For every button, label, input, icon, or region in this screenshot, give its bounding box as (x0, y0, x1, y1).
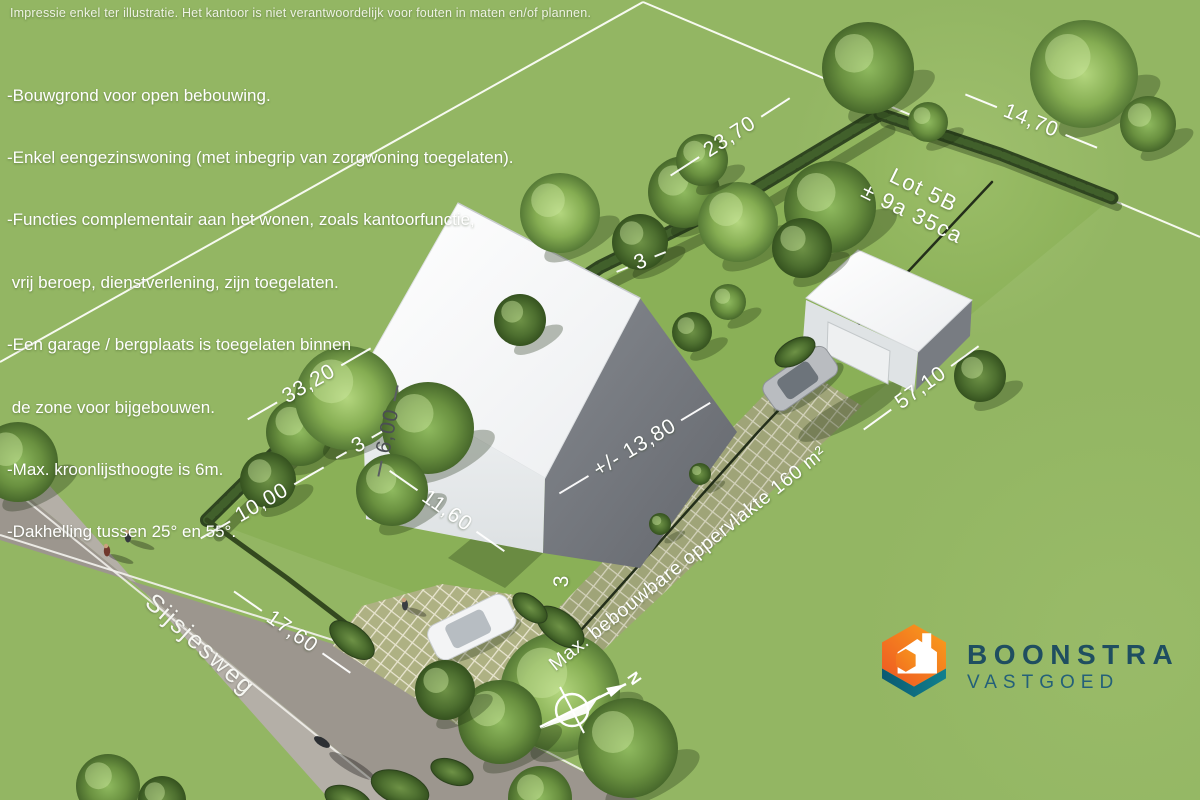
boonstra-vastgoed-logo: BOONSTRA VASTGOED (873, 621, 1179, 703)
disclaimer-text: Impressie enkel ter illustratie. Het kan… (10, 6, 591, 20)
dimension-setback-strip: 3 (550, 574, 574, 588)
site-plan-illustration: N Impressie enkel ter illustratie. Het k… (0, 0, 1200, 800)
regulations-list: -Bouwgrond voor open bebouwing. -Enkel e… (7, 44, 514, 585)
regulation-line: -Functies complementair aan het wonen, z… (7, 210, 514, 231)
regulation-line: vrij beroep, dienstverlening, zijn toege… (7, 273, 514, 294)
regulation-line: -Max. kroonlijsthoogte is 6m. (7, 460, 514, 481)
logo-hexagon-icon (873, 621, 955, 703)
regulation-line: -Een garage / bergplaats is toegelaten b… (7, 335, 514, 356)
regulation-line: -Bouwgrond voor open bebouwing. (7, 86, 514, 107)
regulation-line: de zone voor bijgebouwen. (7, 398, 514, 419)
regulation-line: -Dakhelling tussen 25° en 55°. (7, 522, 514, 543)
logo-brand-text: BOONSTRA (967, 641, 1179, 669)
regulation-line: -Enkel eengezinswoning (met inbegrip van… (7, 148, 514, 169)
logo-division-text: VASTGOED (967, 672, 1179, 694)
